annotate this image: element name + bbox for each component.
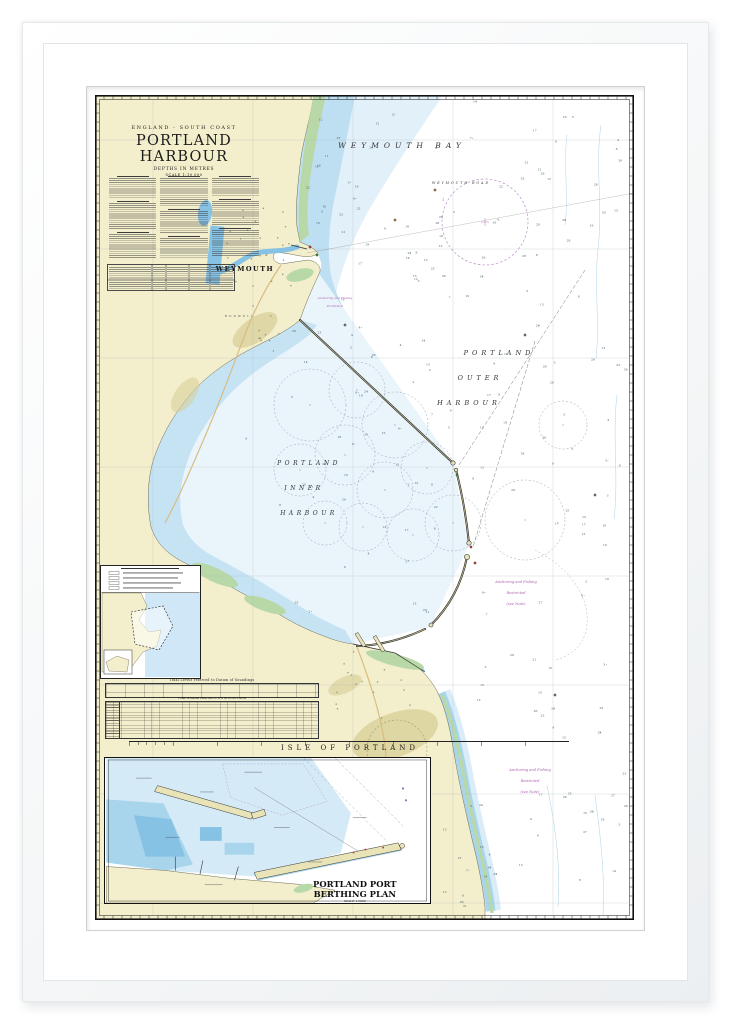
svg-text:25: 25 bbox=[302, 483, 306, 487]
notes-column bbox=[160, 174, 207, 262]
svg-text:13: 13 bbox=[519, 863, 523, 867]
svg-text:13: 13 bbox=[414, 481, 418, 485]
svg-text:22: 22 bbox=[322, 462, 326, 466]
svg-text:3: 3 bbox=[350, 346, 352, 350]
svg-text:19: 19 bbox=[359, 393, 363, 397]
svg-text:12: 12 bbox=[375, 122, 379, 126]
svg-text:12: 12 bbox=[443, 828, 447, 832]
svg-text:8: 8 bbox=[416, 251, 418, 255]
framed-chart-photo: Anchoring and Fishing Restricted (see No… bbox=[0, 0, 731, 1024]
svg-text:20: 20 bbox=[602, 210, 606, 214]
svg-text:29: 29 bbox=[482, 255, 486, 259]
svg-text:9: 9 bbox=[482, 591, 484, 595]
svg-text:9: 9 bbox=[245, 437, 247, 441]
svg-text:10: 10 bbox=[603, 543, 607, 547]
tidal-streams-table: Tidal Streams referred to HW at PORTLAND bbox=[105, 696, 319, 739]
svg-text:9: 9 bbox=[450, 409, 452, 413]
svg-text:8: 8 bbox=[536, 253, 538, 257]
svg-text:3: 3 bbox=[321, 210, 323, 214]
svg-text:4: 4 bbox=[537, 833, 539, 837]
svg-text:8: 8 bbox=[462, 893, 464, 897]
svg-text:4: 4 bbox=[493, 362, 495, 366]
svg-text:3: 3 bbox=[618, 823, 620, 827]
svg-text:11: 11 bbox=[425, 610, 429, 614]
svg-text:8: 8 bbox=[279, 503, 281, 507]
svg-text:29: 29 bbox=[543, 364, 547, 368]
svg-text:15: 15 bbox=[480, 426, 484, 430]
svg-text:22: 22 bbox=[306, 185, 310, 189]
svg-text:25: 25 bbox=[565, 508, 569, 512]
svg-text:26: 26 bbox=[624, 804, 628, 808]
svg-text:21: 21 bbox=[463, 904, 467, 908]
svg-text:24: 24 bbox=[479, 803, 483, 807]
svg-text:10: 10 bbox=[344, 473, 348, 477]
svg-text:3: 3 bbox=[453, 210, 455, 214]
svg-text:15: 15 bbox=[562, 735, 566, 739]
label-weymouth-bay: WEYMOUTH BAY bbox=[338, 141, 466, 150]
svg-text:28: 28 bbox=[521, 451, 525, 455]
svg-text:7: 7 bbox=[466, 868, 468, 872]
tidal-streams-grid bbox=[105, 701, 319, 739]
svg-text:9: 9 bbox=[498, 393, 500, 397]
svg-text:8: 8 bbox=[431, 482, 433, 486]
restricted-south-line2: Restricted bbox=[520, 779, 541, 783]
svg-text:12: 12 bbox=[477, 698, 481, 702]
svg-text:16: 16 bbox=[605, 577, 609, 581]
svg-text:3: 3 bbox=[607, 494, 609, 498]
svg-text:4: 4 bbox=[617, 138, 619, 142]
svg-text:8: 8 bbox=[434, 526, 436, 530]
svg-text:4: 4 bbox=[367, 552, 369, 556]
svg-text:17: 17 bbox=[358, 261, 362, 265]
label-outer-harbour-2: OUTER bbox=[458, 374, 503, 382]
svg-text:6: 6 bbox=[398, 427, 400, 431]
svg-text:23: 23 bbox=[339, 212, 343, 216]
prohibited-line1: Anchoring and Fishing bbox=[317, 296, 353, 300]
svg-text:11: 11 bbox=[325, 154, 329, 158]
svg-text:3: 3 bbox=[485, 665, 487, 669]
svg-text:6: 6 bbox=[344, 565, 346, 569]
svg-text:8: 8 bbox=[619, 464, 621, 468]
svg-text:27: 27 bbox=[611, 794, 615, 798]
svg-text:13: 13 bbox=[614, 208, 618, 212]
svg-text:8: 8 bbox=[579, 878, 581, 882]
restricted-outer-line3: (see Note) bbox=[507, 602, 527, 606]
svg-text:14: 14 bbox=[612, 869, 616, 873]
notes-column bbox=[109, 174, 156, 262]
svg-text:17: 17 bbox=[309, 485, 313, 489]
tidal-streams-title: Tidal Streams referred to HW at PORTLAND bbox=[105, 696, 319, 700]
svg-text:13: 13 bbox=[413, 601, 417, 605]
svg-text:28: 28 bbox=[439, 215, 443, 219]
svg-text:16: 16 bbox=[317, 164, 321, 168]
svg-text:16: 16 bbox=[355, 185, 359, 189]
svg-text:10: 10 bbox=[492, 220, 496, 224]
svg-text:10: 10 bbox=[439, 234, 443, 238]
restricted-outer-line1: Anchoring and Fishing bbox=[494, 580, 537, 584]
svg-text:27: 27 bbox=[405, 560, 409, 564]
svg-text:14: 14 bbox=[304, 360, 308, 364]
svg-text:6: 6 bbox=[581, 593, 583, 597]
chart-title: PORTLAND HARBOUR bbox=[109, 133, 259, 165]
svg-text:12: 12 bbox=[548, 666, 552, 670]
svg-text:18: 18 bbox=[337, 435, 341, 439]
svg-text:23: 23 bbox=[563, 115, 567, 119]
svg-text:12: 12 bbox=[424, 258, 428, 262]
svg-text:8: 8 bbox=[578, 295, 580, 299]
label-rodwell: RODWELL bbox=[225, 314, 255, 318]
label-weymouth-road: WEYMOUTH ROAD bbox=[432, 181, 490, 185]
svg-text:6: 6 bbox=[371, 355, 373, 359]
svg-text:12: 12 bbox=[319, 117, 323, 121]
svg-text:12: 12 bbox=[547, 177, 551, 181]
svg-text:15: 15 bbox=[480, 683, 484, 687]
svg-text:26: 26 bbox=[460, 900, 464, 904]
label-inner-harbour-1: PORTLAND bbox=[276, 460, 341, 467]
berthing-plan-inset: PORTLAND PORT BERTHING PLAN SCALE 1:5000 bbox=[104, 757, 431, 904]
svg-text:29: 29 bbox=[510, 653, 514, 657]
title-block: ENGLAND - SOUTH COAST PORTLAND HARBOUR D… bbox=[109, 125, 259, 177]
svg-text:7: 7 bbox=[486, 612, 488, 616]
svg-text:17: 17 bbox=[582, 523, 586, 527]
svg-text:28: 28 bbox=[435, 221, 439, 225]
svg-text:26: 26 bbox=[534, 709, 538, 713]
svg-text:26: 26 bbox=[624, 367, 628, 371]
svg-text:21: 21 bbox=[342, 230, 346, 234]
svg-text:8: 8 bbox=[555, 140, 557, 144]
svg-text:25: 25 bbox=[568, 791, 572, 795]
source-data-diagram bbox=[100, 565, 201, 679]
svg-text:3: 3 bbox=[348, 180, 350, 184]
svg-text:5: 5 bbox=[563, 413, 565, 417]
svg-text:7: 7 bbox=[431, 412, 433, 416]
svg-text:16: 16 bbox=[316, 221, 320, 225]
nautical-chart: Anchoring and Fishing Restricted (see No… bbox=[95, 95, 634, 920]
svg-text:25: 25 bbox=[369, 146, 373, 150]
svg-text:13: 13 bbox=[439, 244, 443, 248]
svg-text:6: 6 bbox=[372, 470, 374, 474]
svg-text:9: 9 bbox=[497, 217, 499, 221]
svg-text:6: 6 bbox=[435, 146, 437, 150]
svg-text:3: 3 bbox=[605, 458, 607, 462]
svg-text:22: 22 bbox=[434, 505, 438, 509]
svg-text:9: 9 bbox=[351, 333, 353, 337]
svg-text:15: 15 bbox=[538, 690, 542, 694]
svg-text:24: 24 bbox=[364, 390, 368, 394]
svg-text:21: 21 bbox=[532, 658, 536, 662]
svg-text:4: 4 bbox=[607, 418, 609, 422]
scale-bar bbox=[129, 741, 569, 746]
svg-text:28: 28 bbox=[563, 795, 567, 799]
svg-text:17: 17 bbox=[487, 393, 491, 397]
svg-text:8: 8 bbox=[355, 391, 357, 395]
svg-text:23: 23 bbox=[616, 363, 620, 367]
svg-text:8: 8 bbox=[384, 227, 386, 231]
svg-text:25: 25 bbox=[431, 267, 435, 271]
svg-text:26: 26 bbox=[618, 158, 622, 162]
svg-text:23: 23 bbox=[317, 331, 321, 335]
svg-text:4: 4 bbox=[359, 326, 361, 330]
svg-text:5: 5 bbox=[448, 426, 450, 430]
svg-text:2: 2 bbox=[442, 198, 444, 202]
svg-text:18: 18 bbox=[590, 224, 594, 228]
svg-text:5: 5 bbox=[571, 447, 573, 451]
svg-text:13: 13 bbox=[413, 274, 417, 278]
label-outer-harbour-1: PORTLAND bbox=[463, 349, 535, 357]
svg-text:18: 18 bbox=[601, 818, 605, 822]
svg-text:4: 4 bbox=[352, 442, 354, 446]
svg-text:29: 29 bbox=[511, 488, 515, 492]
svg-text:5: 5 bbox=[526, 289, 528, 293]
svg-text:2: 2 bbox=[412, 380, 414, 384]
svg-text:12: 12 bbox=[391, 113, 395, 117]
label-outer-harbour-3: HARBOUR bbox=[436, 399, 501, 407]
svg-text:23: 23 bbox=[294, 600, 298, 604]
restricted-south-line3: (see Note) bbox=[521, 790, 541, 794]
svg-text:21: 21 bbox=[525, 160, 529, 164]
svg-text:2: 2 bbox=[429, 368, 431, 372]
svg-text:9: 9 bbox=[552, 461, 554, 465]
svg-text:4: 4 bbox=[400, 343, 402, 347]
svg-text:17: 17 bbox=[539, 793, 543, 797]
svg-text:4: 4 bbox=[489, 852, 491, 856]
svg-text:13: 13 bbox=[601, 346, 605, 350]
svg-text:9: 9 bbox=[552, 726, 554, 730]
berthing-scale-note: SCALE 1:5000 bbox=[344, 899, 366, 903]
svg-text:16: 16 bbox=[364, 433, 368, 437]
svg-text:13: 13 bbox=[382, 525, 386, 529]
svg-text:12: 12 bbox=[443, 890, 447, 894]
svg-text:25: 25 bbox=[521, 176, 525, 180]
prohibited-line2: Prohibited bbox=[326, 304, 343, 308]
svg-text:17: 17 bbox=[405, 528, 409, 532]
tidal-levels-title: Tidal Levels referred to Datum of Soundi… bbox=[105, 678, 319, 682]
svg-text:18: 18 bbox=[365, 242, 369, 246]
svg-text:13: 13 bbox=[540, 302, 544, 306]
svg-text:4: 4 bbox=[312, 495, 314, 499]
svg-text:5: 5 bbox=[572, 115, 574, 119]
svg-text:15: 15 bbox=[382, 431, 386, 435]
svg-text:2: 2 bbox=[309, 610, 311, 614]
svg-text:23: 23 bbox=[541, 713, 545, 717]
svg-text:27: 27 bbox=[583, 830, 587, 834]
svg-text:29: 29 bbox=[591, 358, 595, 362]
restricted-outer-line2: Restricted bbox=[506, 591, 527, 595]
restricted-south-line1: Anchoring and Fishing bbox=[508, 768, 551, 772]
chart-region: ENGLAND - SOUTH COAST bbox=[109, 125, 259, 131]
svg-text:21: 21 bbox=[538, 168, 542, 172]
svg-text:5: 5 bbox=[554, 360, 556, 364]
svg-text:29: 29 bbox=[342, 497, 346, 501]
svg-text:5: 5 bbox=[291, 395, 293, 399]
svg-text:13: 13 bbox=[426, 363, 430, 367]
svg-text:13: 13 bbox=[395, 463, 399, 467]
notes-column bbox=[212, 174, 259, 262]
svg-text:28: 28 bbox=[567, 239, 571, 243]
svg-text:8: 8 bbox=[472, 476, 474, 480]
svg-text:28: 28 bbox=[536, 222, 540, 226]
authority-table bbox=[107, 264, 235, 291]
tidal-levels-table: Tidal Levels referred to Datum of Soundi… bbox=[105, 678, 319, 698]
svg-text:16: 16 bbox=[480, 845, 484, 849]
svg-text:8: 8 bbox=[616, 147, 618, 151]
svg-text:2: 2 bbox=[585, 580, 587, 584]
svg-text:5: 5 bbox=[470, 804, 472, 808]
svg-text:13: 13 bbox=[581, 532, 585, 536]
svg-text:18: 18 bbox=[322, 205, 326, 209]
svg-text:13: 13 bbox=[582, 515, 586, 519]
svg-text:9: 9 bbox=[353, 197, 355, 201]
chart-notes bbox=[109, 174, 259, 262]
svg-text:3: 3 bbox=[418, 279, 420, 283]
svg-text:29: 29 bbox=[541, 171, 545, 175]
svg-text:7: 7 bbox=[449, 296, 451, 300]
svg-text:2: 2 bbox=[407, 482, 409, 486]
svg-text:17: 17 bbox=[533, 128, 537, 132]
chart-depths-note: DEPTHS IN METRES bbox=[109, 167, 259, 172]
svg-text:13: 13 bbox=[480, 465, 484, 469]
svg-text:23: 23 bbox=[623, 772, 627, 776]
svg-text:23: 23 bbox=[357, 206, 361, 210]
svg-text:23: 23 bbox=[599, 706, 603, 710]
svg-text:10: 10 bbox=[465, 294, 469, 298]
svg-text:6: 6 bbox=[530, 817, 532, 821]
svg-text:16: 16 bbox=[405, 224, 409, 228]
svg-text:15: 15 bbox=[458, 856, 462, 860]
svg-text:22: 22 bbox=[499, 185, 503, 189]
svg-text:28: 28 bbox=[542, 435, 546, 439]
berthing-title-line2: BERTHING PLAN bbox=[314, 889, 397, 899]
svg-text:27: 27 bbox=[539, 600, 543, 604]
svg-text:28: 28 bbox=[292, 329, 296, 333]
svg-text:15: 15 bbox=[583, 811, 587, 815]
svg-text:7: 7 bbox=[470, 136, 472, 140]
berthing-title-line1: PORTLAND PORT bbox=[313, 879, 397, 889]
svg-text:3: 3 bbox=[603, 662, 605, 666]
svg-text:10: 10 bbox=[602, 524, 606, 528]
label-inner-harbour-3: HARBOUR bbox=[279, 510, 338, 517]
